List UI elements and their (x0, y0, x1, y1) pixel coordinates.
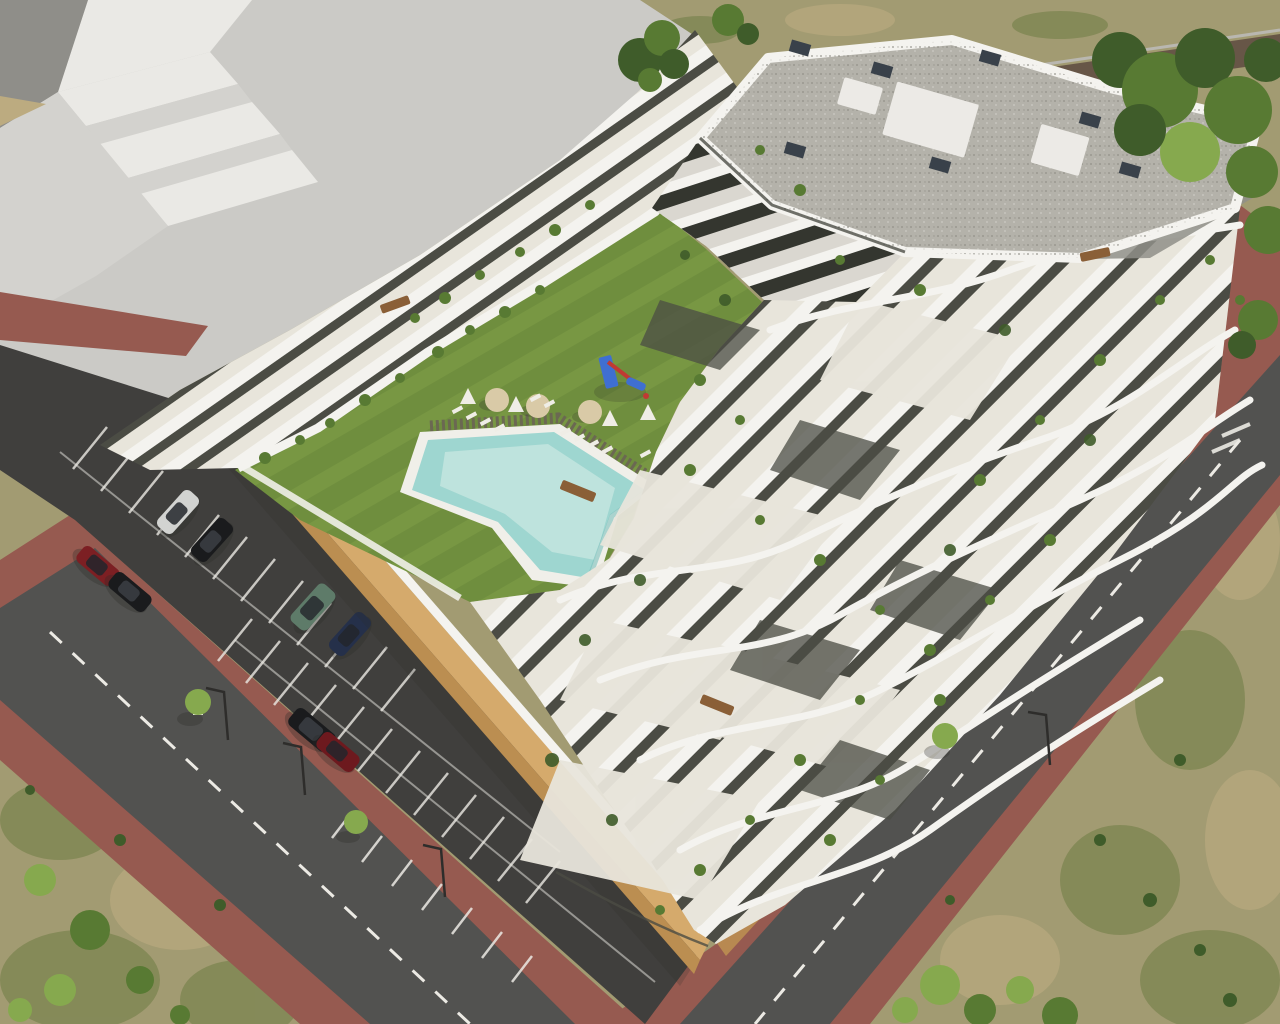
aerial-architectural-render (0, 0, 1280, 1024)
